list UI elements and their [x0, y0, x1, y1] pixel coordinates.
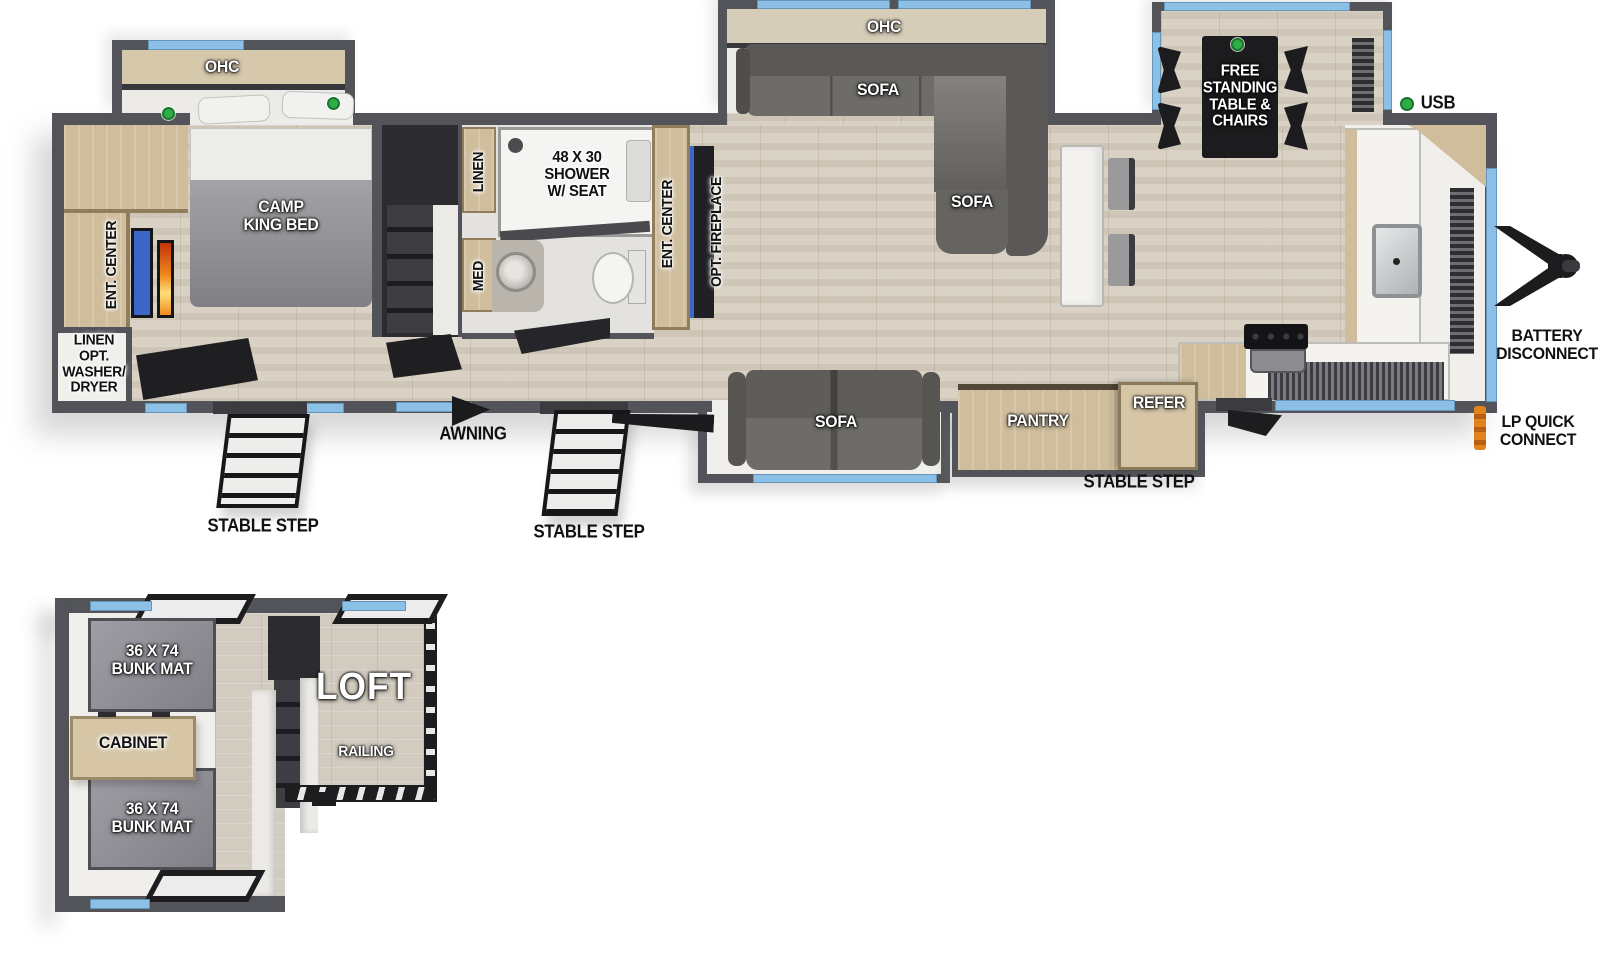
label-lp-quick-connect: LP QUICK CONNECT: [1500, 413, 1576, 449]
loft-window-bottom: [90, 899, 150, 909]
sofa-slide-window-2: [898, 0, 1031, 9]
loft-stairs-treads: [387, 205, 433, 333]
label-pantry: PANTRY: [1007, 412, 1069, 430]
sectional-chaise: [934, 76, 1006, 192]
label-sofa-long: SOFA: [857, 81, 899, 99]
loft-stair-wall-left: [252, 690, 276, 896]
lp-quick-connect-fitting: [1474, 406, 1486, 450]
entry-door-right: [1216, 398, 1272, 411]
label-refer: REFER: [1133, 394, 1185, 412]
label-med: MED: [471, 261, 487, 291]
island-stool-2: [1108, 234, 1135, 286]
label-loft: LOFT: [316, 668, 412, 708]
sectional-back: [746, 44, 1014, 76]
shower-seat: [626, 140, 651, 202]
label-stable-step-right: STABLE STEP: [1083, 473, 1194, 492]
label-linen: LINEN: [471, 152, 487, 192]
bedroom-partition-wall: [372, 125, 382, 337]
bottom-sofa-window: [753, 474, 937, 483]
hitch-tongue: [1494, 216, 1580, 316]
floorplan-canvas: OHC CAMP KING BED ENT. CENTER LINEN OPT.…: [0, 0, 1600, 959]
label-stable-step-middle: STABLE STEP: [533, 523, 644, 542]
shower-head: [508, 138, 523, 153]
label-free-standing-table: FREE STANDING TABLE & CHAIRS: [1203, 63, 1277, 130]
bed-pillow-right: [282, 91, 355, 120]
stable-step-ladder-middle: [541, 410, 630, 516]
loft-cabinet-handle-2: [152, 712, 170, 717]
loft-step: [312, 792, 336, 806]
bottom-sofa-arm-right: [922, 372, 940, 466]
loft-cabinet-handle-1: [98, 712, 116, 717]
label-camp-king-bed: CAMP KING BED: [243, 198, 318, 234]
label-usb: USB: [1421, 94, 1456, 113]
entry-door-left: [213, 402, 307, 414]
loft-railing-right: [424, 606, 437, 802]
roof-hatch-bottom: [143, 870, 265, 902]
bed-pillow-left: [197, 94, 270, 125]
bath-sink: [496, 252, 536, 292]
label-bunk-top: 36 X 74 BUNK MAT: [112, 642, 193, 678]
label-cabinet: CABINET: [99, 734, 167, 752]
bedroom-slide-window: [148, 40, 244, 50]
usb-dot-dining: [1231, 38, 1244, 51]
label-awning: AWNING: [439, 425, 506, 444]
sofa-slide-window-1: [757, 0, 890, 9]
loft-stairs-landing: [433, 205, 458, 335]
front-window-blinds: [1450, 188, 1474, 354]
label-battery-disconnect: BATTERY DISCONNECT: [1496, 327, 1598, 363]
usb-dot-front: [1400, 97, 1414, 111]
label-bedroom-ent-center: ENT. CENTER: [104, 221, 120, 309]
label-bedroom-ohc: OHC: [205, 58, 239, 76]
label-shower: 48 X 30 SHOWER W/ SEAT: [544, 150, 609, 200]
bedroom-fireplace-screen: [131, 228, 153, 318]
kitchen-island: [1060, 145, 1104, 307]
dining-window-blinds: [1352, 38, 1374, 112]
loft-window-top-right: [342, 601, 406, 611]
island-stool-1: [1108, 158, 1135, 210]
bottom-window-bedroom-1: [145, 403, 187, 413]
dining-window-top: [1164, 2, 1350, 11]
toilet-bowl: [592, 252, 634, 304]
sectional-corner-back: [1006, 44, 1048, 256]
bottom-sofa-arm-left: [728, 372, 746, 466]
label-sofa-bottom: SOFA: [815, 413, 857, 431]
label-living-ent-center: ENT. CENTER: [660, 180, 676, 268]
label-railing: RAILING: [338, 744, 393, 760]
usb-dot-bedroom-right: [327, 97, 340, 110]
usb-dot-bedroom-left: [162, 107, 175, 120]
entry-step-folded: [1228, 410, 1282, 436]
bottom-window-kitchen: [1275, 400, 1455, 411]
loft-railing-bottom: [285, 785, 437, 802]
label-bunk-bottom: 36 X 74 BUNK MAT: [112, 800, 193, 836]
dining-window-right: [1383, 30, 1392, 110]
bedroom-wardrobe: [64, 125, 188, 213]
bottom-sofa-back: [746, 370, 922, 418]
loft-wall-left: [55, 598, 69, 912]
label-linen-washer-dryer: LINEN OPT. WASHER/ DRYER: [62, 333, 125, 396]
sectional-arm-left: [736, 48, 750, 114]
stove-front: [1250, 349, 1306, 373]
loft-window-top-left: [90, 601, 152, 611]
stable-step-ladder-left: [216, 414, 310, 508]
loft-stairwell-top: [268, 616, 320, 680]
label-opt-fireplace: OPT. FIREPLACE: [709, 177, 725, 287]
label-stable-step-left: STABLE STEP: [207, 517, 318, 536]
stove-cooktop: [1244, 324, 1308, 349]
dining-window-left: [1152, 32, 1161, 110]
bed-sheet: [190, 128, 372, 182]
label-living-ohc: OHC: [867, 18, 901, 36]
bedroom-fireplace-flame: [157, 240, 174, 318]
label-sofa-corner: SOFA: [951, 193, 993, 211]
kitchen-sink-drain: [1393, 258, 1400, 265]
